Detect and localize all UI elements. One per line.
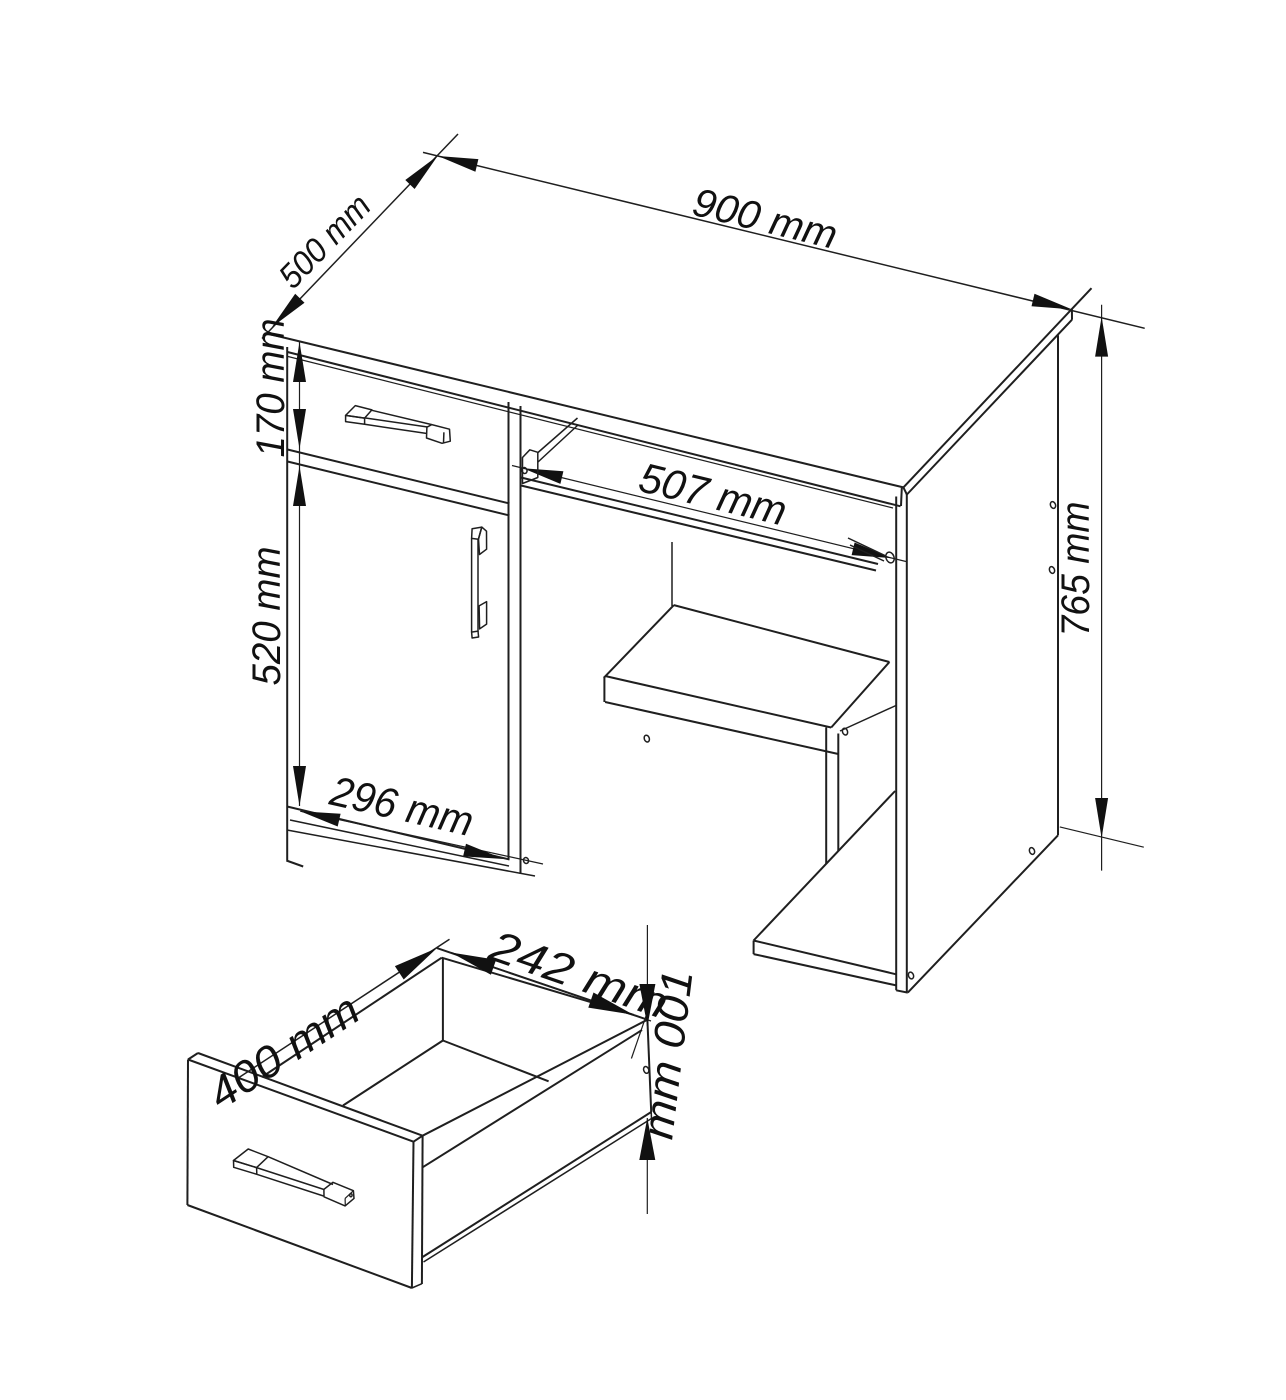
svg-text:765 mm: 765 mm: [1054, 502, 1098, 637]
svg-text:900 mm: 900 mm: [688, 180, 841, 258]
svg-text:242 mm: 242 mm: [482, 921, 674, 1028]
svg-text:500 mm: 500 mm: [271, 187, 378, 296]
svg-text:507 mm: 507 mm: [635, 454, 792, 535]
svg-text:400 mm: 400 mm: [200, 985, 369, 1119]
svg-text:520 mm: 520 mm: [245, 547, 289, 686]
svg-text:170 mm: 170 mm: [249, 319, 293, 458]
